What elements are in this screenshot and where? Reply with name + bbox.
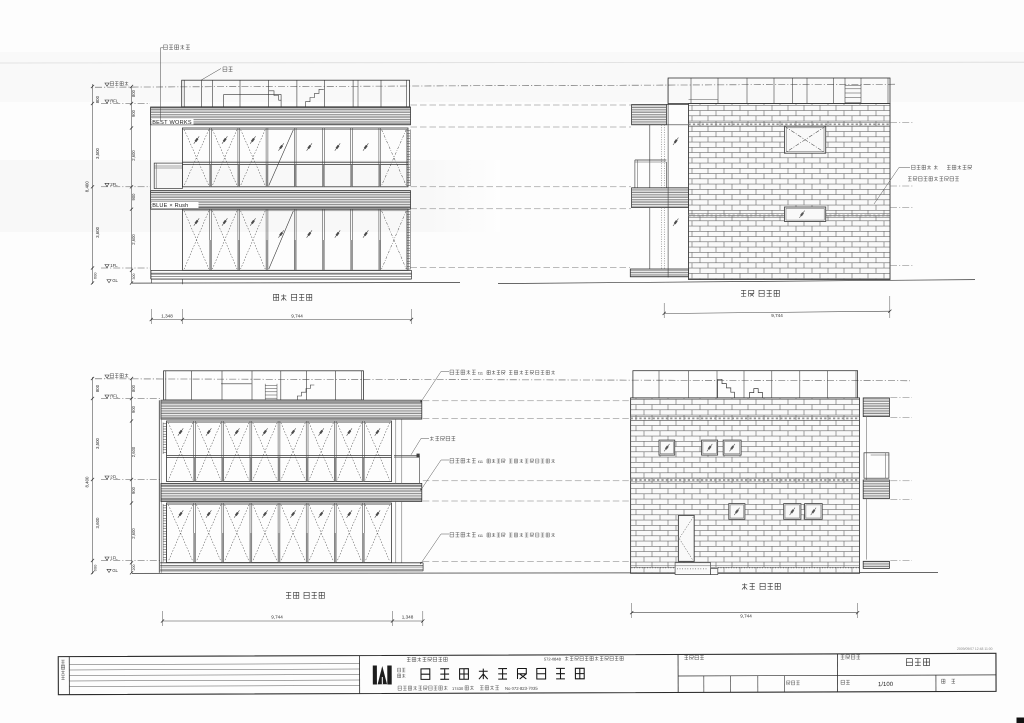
svg-text:800: 800 — [95, 95, 100, 103]
svg-text:9,744: 9,744 — [740, 614, 752, 619]
svg-text:RFL: RFL — [110, 99, 119, 104]
svg-text:t11: t11 — [478, 534, 483, 538]
svg-text:800: 800 — [131, 384, 136, 392]
svg-text:9,744: 9,744 — [291, 313, 303, 318]
svg-text:3,600: 3,600 — [95, 226, 100, 238]
svg-text:9,744: 9,744 — [271, 615, 283, 620]
svg-text:1,348: 1,348 — [402, 615, 414, 620]
svg-text:1,348: 1,348 — [161, 313, 173, 318]
svg-text:2,600: 2,600 — [131, 150, 136, 161]
svg-text:900: 900 — [131, 486, 136, 494]
svg-text:300: 300 — [132, 274, 136, 280]
svg-text:800: 800 — [95, 384, 100, 392]
svg-text:t11: t11 — [478, 460, 483, 464]
svg-text:900: 900 — [131, 405, 136, 413]
svg-text:GL: GL — [112, 568, 118, 573]
svg-text:8,400: 8,400 — [85, 476, 90, 488]
svg-text:3,500: 3,500 — [95, 437, 100, 449]
svg-text:1/100: 1/100 — [878, 682, 894, 688]
svg-text:1FL: 1FL — [110, 556, 118, 561]
svg-text:900: 900 — [131, 193, 136, 201]
svg-text:9,744: 9,744 — [771, 313, 783, 318]
svg-text:RFL: RFL — [110, 394, 119, 399]
svg-text:800: 800 — [131, 89, 136, 97]
svg-text:2FL: 2FL — [110, 475, 118, 480]
svg-text:600: 600 — [93, 272, 98, 279]
svg-text:3,500: 3,500 — [95, 147, 100, 159]
svg-text:2FL: 2FL — [110, 182, 118, 187]
svg-text:BEST WORKS: BEST WORKS — [152, 120, 192, 126]
svg-text:2,600: 2,600 — [131, 446, 136, 457]
svg-text:2,600: 2,600 — [131, 528, 136, 539]
svg-text:1FL: 1FL — [110, 263, 118, 268]
svg-text:t11: t11 — [478, 372, 483, 376]
svg-text:GL: GL — [112, 278, 118, 283]
svg-text:900: 900 — [131, 109, 136, 117]
svg-text:600: 600 — [93, 564, 98, 571]
svg-text:200: 200 — [132, 565, 136, 571]
svg-text:2009/09/07 12:48 11:00: 2009/09/07 12:48 11:00 — [957, 647, 993, 651]
svg-text:BLUE × Rush: BLUE × Rush — [152, 203, 188, 209]
svg-text:3,600: 3,600 — [95, 517, 100, 529]
svg-text:2,600: 2,600 — [131, 234, 136, 245]
svg-text:572-0848: 572-0848 — [544, 656, 562, 661]
svg-text:8,400: 8,400 — [85, 181, 90, 193]
svg-text:17430: 17430 — [452, 686, 464, 691]
svg-text:No 072-823-7035: No 072-823-7035 — [505, 686, 538, 691]
